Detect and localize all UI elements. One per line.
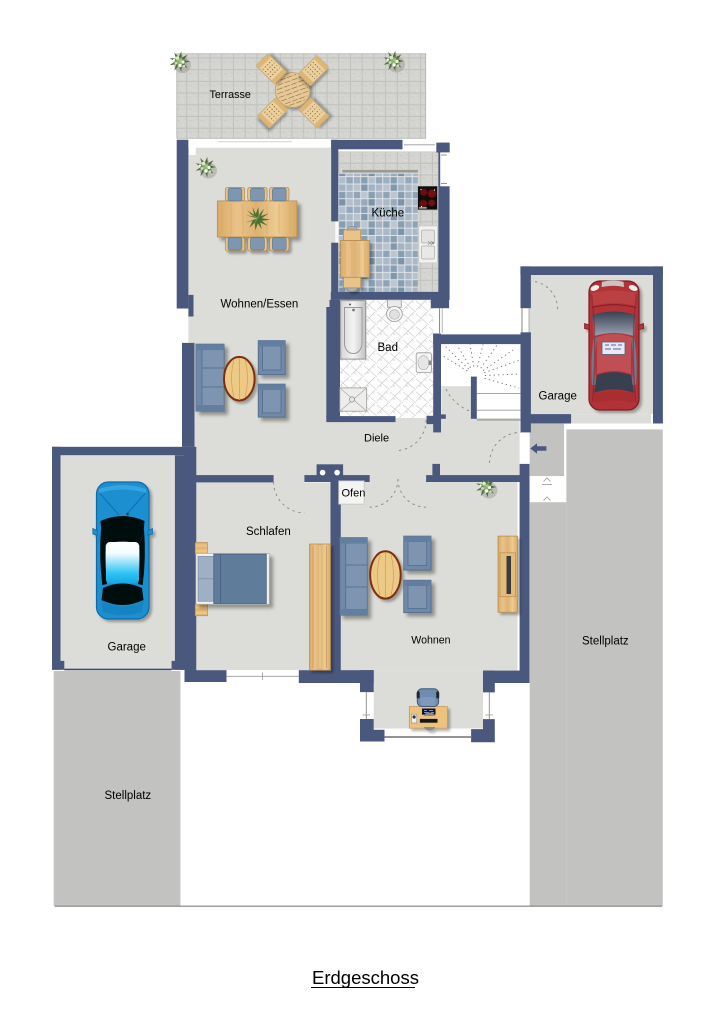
svg-text:Erdgeschoss: Erdgeschoss xyxy=(312,967,419,988)
svg-text:Schlafen: Schlafen xyxy=(246,526,291,538)
svg-text:Garage: Garage xyxy=(108,642,146,654)
svg-text:Terrasse: Terrasse xyxy=(210,89,251,101)
svg-text:Küche: Küche xyxy=(372,208,405,220)
svg-text:Bad: Bad xyxy=(378,342,398,354)
svg-text:Ofen: Ofen xyxy=(342,488,366,500)
svg-text:Wohnen/Essen: Wohnen/Essen xyxy=(221,299,299,311)
svg-text:Diele: Diele xyxy=(364,433,389,445)
svg-text:Stellplatz: Stellplatz xyxy=(582,636,629,648)
svg-text:Garage: Garage xyxy=(539,391,577,403)
svg-text:Wohnen: Wohnen xyxy=(411,635,450,647)
svg-text:Stellplatz: Stellplatz xyxy=(105,790,152,802)
